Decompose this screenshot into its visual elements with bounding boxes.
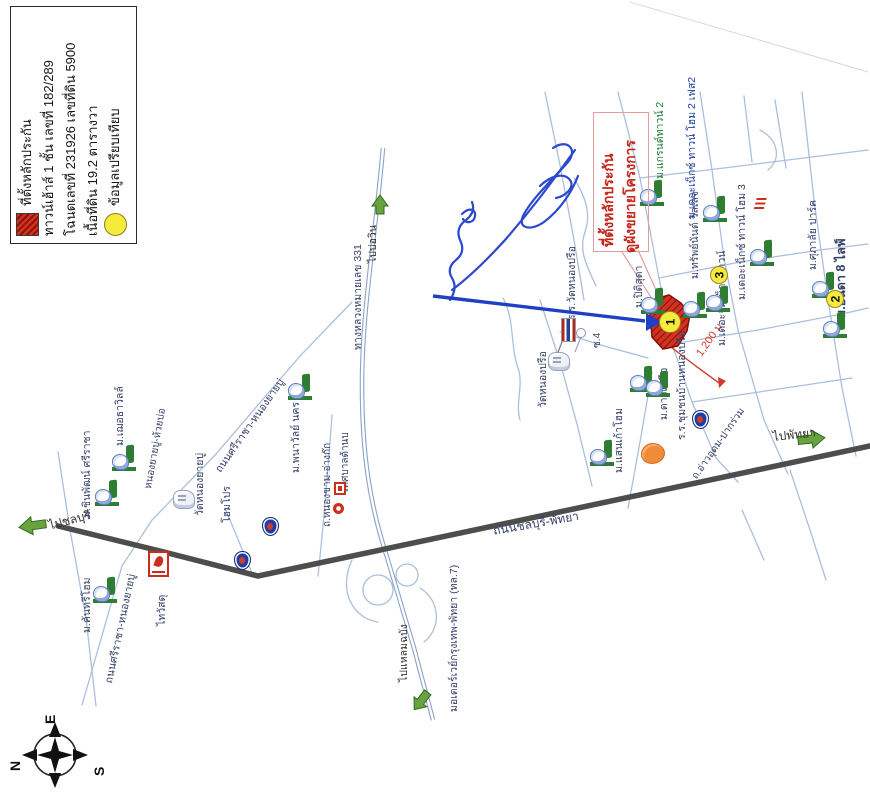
redflower-icon xyxy=(333,503,344,514)
legend-item-label: เนื้อที่ดิน 19.2 ตารางวา xyxy=(85,105,101,236)
badge-number: 2 xyxy=(828,296,842,303)
thaiwatsadu-icon xyxy=(148,551,169,577)
temple-icon xyxy=(173,490,195,509)
estate-icon xyxy=(823,312,847,338)
estate-icon xyxy=(112,445,136,471)
estate-icon xyxy=(703,196,727,222)
mu-chinnaphat-sriracha-label: ม.ชินพัฒน์ ศรีราชา xyxy=(81,430,94,518)
legend-item: ที่ตั้งหลักประกัน xyxy=(16,14,38,236)
estate-icon xyxy=(93,577,117,603)
dir-laemchabang-label: ไปแหลมฉบัง xyxy=(398,624,411,682)
mu-choetha-ville-label: ม.เฌอธาวิลล์ xyxy=(114,386,127,446)
comparable-badge-1: 1 xyxy=(659,311,681,333)
compass-rose xyxy=(22,722,88,788)
estate-icon xyxy=(683,292,707,318)
legend-item: โฉนดเลขที่ 231926 เลขที่ดิน 5900 xyxy=(60,14,82,236)
mu-grand-town-2-label: ม.แกรนด์ทาวน์ 2 xyxy=(654,102,667,179)
scan-edge-line xyxy=(630,2,868,72)
estate-icon xyxy=(706,286,730,312)
chonburi-pattaya-road xyxy=(58,446,870,576)
callout-box: ที่ตั้งหลักประกัน ดูผังขยายโครงการ xyxy=(593,112,649,252)
compass-letter-e: E xyxy=(42,715,58,724)
callout-line1: ที่ตั้งหลักประกัน xyxy=(600,154,617,247)
legend-item: ทาวน์เฮ้าส์ 1 ชั้น เลขที่ 182/289 xyxy=(38,14,60,236)
legend-item-label: ทาวน์เฮ้าส์ 1 ชั้น เลขที่ 182/289 xyxy=(41,60,57,236)
comparable-badge-2: 2 xyxy=(826,290,844,308)
estate-icon xyxy=(95,480,119,506)
handwriting-ink xyxy=(450,144,578,300)
estate-icon xyxy=(288,374,312,400)
estate-icon xyxy=(646,371,670,397)
road-motorway-label: มอเตอร์เวย์กรุงเทพ-พัทยา (ทล.7) xyxy=(448,565,461,712)
callout-line2: ดูผังขยายโครงการ xyxy=(622,140,639,253)
legend-item-label: ข้อมูลเปรียบเทียบ xyxy=(107,108,123,206)
pointer-arrow xyxy=(433,296,662,331)
thai-watsadu-label: ไทวัสดุ xyxy=(156,595,169,626)
mu-supalai-park-label: ม.ศุภาลัย ปาร์ค xyxy=(807,200,820,270)
comparable-badge-3: 3 xyxy=(710,266,728,284)
estate-icon xyxy=(750,240,774,266)
legend-item: ข้อมูลเปรียบเทียบ xyxy=(104,14,126,236)
legend-rows: ที่ตั้งหลักประกันทาวน์เฮ้าส์ 1 ชั้น เลขท… xyxy=(16,14,126,236)
comparable-swatch xyxy=(104,213,127,236)
flag-icon xyxy=(561,318,576,342)
collateral-swatch xyxy=(16,213,39,236)
mu-saen-kao-home-label: ม.แสนเก้าโฮม xyxy=(613,408,626,473)
homepro-label: โฮมโปร xyxy=(221,486,234,523)
compass-letter-s: S xyxy=(91,767,107,776)
compass-letter-n: N xyxy=(7,761,23,771)
redsquare-icon xyxy=(334,482,346,495)
temple-icon xyxy=(548,352,570,371)
school-wat-nongprue-label: ร.ร.วัดหนองปรือ xyxy=(566,246,579,320)
dir-bowin-label: ไปบ่อวิน xyxy=(367,225,380,263)
road-hwy331-label: ทางหลวงหมายเลข 331 xyxy=(352,244,365,350)
arrow-chonburi xyxy=(18,515,47,537)
map-canvas: ทางหลวงหมายเลข 331ไปบ่อวินมอเตอร์เวย์กรุ… xyxy=(0,0,870,800)
estate-icon xyxy=(590,440,614,466)
badge-number: 1 xyxy=(663,319,677,326)
legend: ที่ตั้งหลักประกันทาวน์เฮ้าส์ 1 ชั้น เลขท… xyxy=(10,6,137,244)
legend-item-label: ที่ตั้งหลักประกัน xyxy=(19,119,35,206)
estate-icon xyxy=(641,288,665,314)
mu-the-next-town-home-2-label: ม.เดอะเน็กซ์ ทาวน์ โฮม 2 เฟส2 xyxy=(686,77,699,219)
wat-nongyaibu-label: วัดหนองยายบู่ xyxy=(194,453,207,516)
soi-4-label: ซ.4 xyxy=(592,333,605,348)
road-nongkham-angkok-label: ถ.หนองขาม-อ่างก๊ก xyxy=(322,443,335,527)
legend-item-label: โฉนดเลขที่ 231926 เลขที่ดิน 5900 xyxy=(63,43,79,236)
mu-the-next-town-home-3-label: ม.เดอะเน็กซ์ ทาวน์ โฮม 3 xyxy=(736,184,749,300)
mu-panawan-nakhon-label: ม.พนาวัลย์ นคร xyxy=(290,402,303,473)
badge-number: 3 xyxy=(712,272,726,279)
school-chumchon-nongprue-label: ร.ร.ชุมชนบ้านหนองปรือ xyxy=(676,331,689,440)
legend-item: เนื้อที่ดิน 19.2 ตารางวา xyxy=(82,14,104,236)
